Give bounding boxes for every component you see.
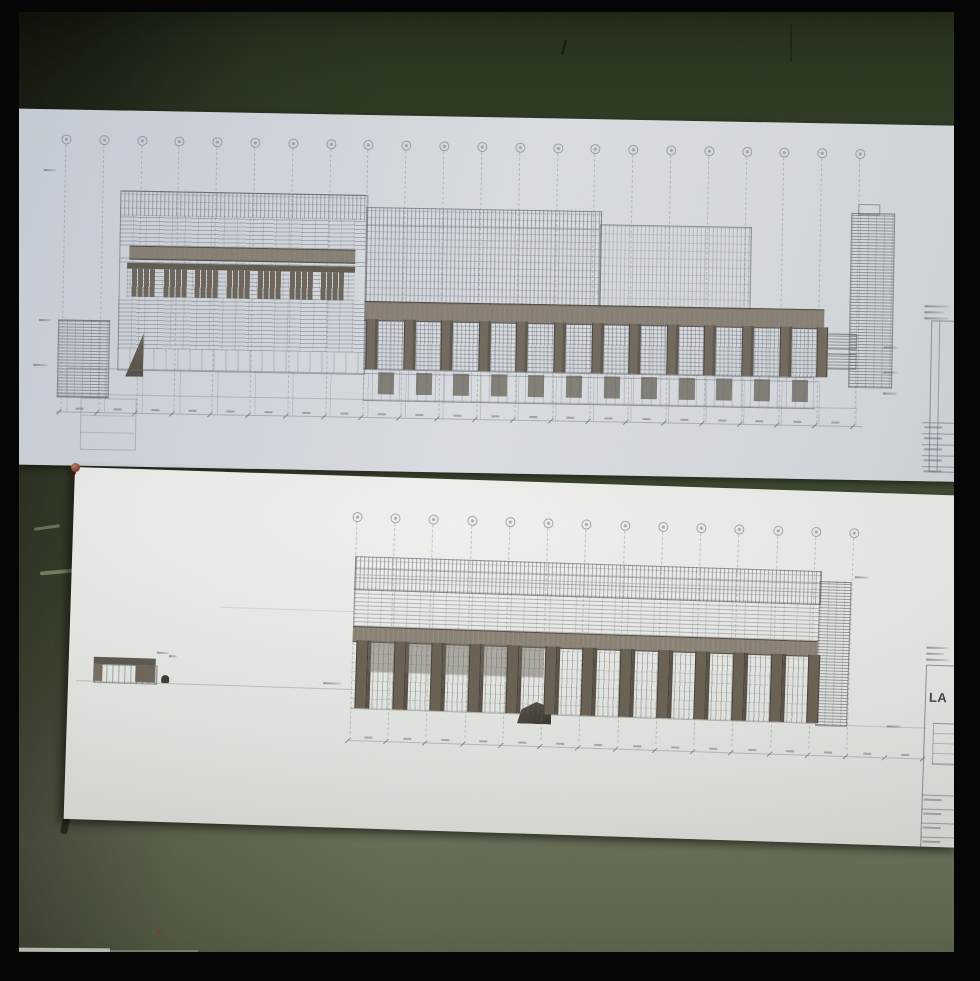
upper-elevation-drawing	[0, 108, 966, 482]
dimension-tick	[774, 422, 780, 428]
opening-deep-shade	[443, 643, 470, 674]
wall-scratch-vertical	[790, 24, 792, 62]
ground-door	[641, 377, 657, 399]
dimension-tick	[321, 414, 327, 420]
grid-axis-line	[363, 150, 369, 415]
opening-deep-shade	[368, 641, 395, 672]
film-border-bottom	[0, 952, 980, 981]
pushpin-head	[71, 463, 80, 472]
grid-bubble	[817, 148, 827, 158]
lower-elevation-drawing: LA	[64, 467, 970, 848]
dimension-tick	[843, 754, 849, 760]
dimension-number-mark	[365, 736, 373, 738]
grid-axis-line	[476, 152, 482, 417]
grid-bubble	[439, 141, 449, 151]
dimension-tick	[920, 756, 926, 762]
grid-axis-line	[401, 151, 407, 416]
upper-drawing-sheet	[0, 108, 966, 482]
opening-glazing	[415, 320, 442, 370]
dimension-number-mark	[718, 419, 726, 421]
dimension-number-mark	[518, 741, 526, 743]
dimension-number-mark	[863, 753, 871, 755]
grid-axis-line	[665, 156, 671, 421]
wall-twig-mark	[561, 40, 567, 55]
lower-drawing-sheet: LA	[64, 467, 970, 848]
film-border-right	[954, 0, 980, 981]
dimension-number-mark	[441, 739, 449, 741]
dimension-tick	[498, 743, 504, 749]
dimension-tick	[690, 749, 696, 755]
dimension-tick	[132, 410, 138, 416]
ground-door	[491, 374, 507, 396]
dimension-tick	[613, 746, 619, 752]
dimension-number-mark	[416, 414, 424, 416]
dimension-tick	[850, 424, 856, 430]
dimension-tick	[737, 422, 743, 428]
grid-axis-line	[779, 158, 785, 423]
window-opening	[288, 272, 313, 300]
dimension-tick	[169, 411, 175, 417]
grid-axis-line	[854, 159, 860, 424]
dimension-number-mark	[786, 750, 794, 752]
dimension-number-mark	[227, 410, 235, 412]
window-opening	[131, 269, 156, 297]
illegible-annotation	[33, 364, 47, 366]
dimension-number-mark	[567, 417, 575, 419]
dimension-tick	[94, 410, 100, 416]
opening-glazing	[640, 324, 667, 374]
dimension-number-mark	[340, 413, 348, 415]
illegible-annotation	[925, 305, 949, 307]
grid-bubble	[477, 142, 487, 152]
opening-glazing	[603, 323, 630, 373]
dimension-number-mark	[264, 411, 272, 413]
dimension-tick	[434, 416, 440, 422]
dimension-tick	[383, 739, 389, 745]
dimension-number-mark	[453, 415, 461, 417]
dimension-number-mark	[302, 412, 310, 414]
lower-generated-layer	[64, 467, 970, 848]
illegible-annotation	[169, 655, 177, 657]
window-opening	[225, 270, 250, 298]
ground-door	[791, 380, 807, 402]
illegible-annotation	[44, 169, 56, 171]
dimension-tick	[805, 753, 811, 759]
dimension-number-mark	[479, 740, 487, 742]
grid-axis-line	[741, 157, 747, 422]
grid-bubble	[704, 146, 714, 156]
upper-generated-layer	[0, 108, 966, 482]
dimension-tick	[245, 413, 251, 419]
illegible-annotation	[926, 653, 944, 656]
window-opening	[162, 269, 187, 297]
dimension-number-mark	[378, 413, 386, 415]
dimension-number-mark	[901, 754, 909, 756]
dimension-tick	[585, 419, 591, 425]
grid-bubble	[250, 138, 260, 148]
ground-door	[453, 374, 469, 396]
opening-glazing	[565, 323, 592, 373]
opening-deep-shade	[481, 644, 508, 675]
dimension-tick	[536, 744, 542, 750]
grid-bubble	[666, 145, 676, 155]
illegible-annotation	[157, 652, 169, 654]
grid-bubble	[288, 139, 298, 149]
grid-axis-line	[514, 153, 520, 418]
dimension-tick	[460, 741, 466, 747]
film-border-left	[0, 0, 19, 981]
dimension-tick	[422, 740, 428, 746]
grid-axis-line	[60, 144, 66, 409]
dimension-number-mark	[556, 743, 564, 745]
grid-bubble	[175, 136, 185, 146]
pushpin	[68, 462, 81, 477]
grid-bubble	[553, 143, 563, 153]
ground-door	[716, 378, 732, 400]
dimension-number-mark	[831, 422, 839, 424]
dimension-number-mark	[491, 415, 499, 417]
grid-axis-line	[846, 538, 854, 750]
dimension-number-mark	[189, 410, 197, 412]
window-opening	[257, 271, 282, 299]
opening-deep-shade	[405, 642, 432, 673]
pier	[816, 327, 828, 377]
illegible-annotation	[924, 317, 948, 319]
grid-bubble	[780, 148, 790, 158]
grid-bubble	[742, 147, 752, 157]
opening-glazing	[528, 322, 555, 372]
dimension-tick	[345, 738, 351, 744]
opening-glazing	[490, 321, 517, 371]
opening-glazing	[716, 325, 743, 375]
ground-door	[754, 379, 770, 401]
film-border-top	[0, 0, 980, 12]
dimension-tick	[548, 418, 554, 424]
dimension-tick	[812, 423, 818, 429]
grid-bubble	[429, 514, 439, 524]
opening-glazing	[791, 327, 818, 377]
dimension-tick	[396, 415, 402, 421]
grid-axis-line	[98, 145, 104, 410]
grid-bubble	[773, 526, 783, 536]
dimension-number-mark	[113, 408, 121, 410]
dimension-number-mark	[605, 417, 613, 419]
grid-bubble	[811, 527, 821, 537]
grid-axis-line	[439, 151, 445, 416]
dimension-tick	[510, 417, 516, 423]
dimension-number-mark	[756, 420, 764, 422]
illegible-annotation	[927, 647, 949, 650]
grid-bubble	[591, 144, 601, 154]
dimension-tick	[472, 417, 478, 423]
grid-axis-line	[552, 153, 558, 418]
dimension-number-mark	[748, 749, 756, 751]
photo-root: LA	[0, 0, 980, 981]
red-speck	[157, 929, 161, 933]
illegible-annotation	[323, 682, 341, 685]
illegible-annotation	[926, 659, 948, 662]
opening-glazing	[753, 326, 780, 376]
grid-axis-line	[817, 158, 823, 423]
window-opening	[194, 270, 219, 298]
grid-bubble	[402, 141, 412, 151]
grid-bubble	[99, 135, 109, 145]
dimension-number-mark	[633, 745, 641, 747]
dimension-tick	[575, 745, 581, 751]
dimension-number-mark	[642, 418, 650, 420]
illegible-annotation	[883, 371, 897, 373]
illegible-annotation	[855, 576, 869, 578]
grid-bubble	[505, 517, 515, 527]
ground-door	[566, 376, 582, 398]
dimension-tick	[699, 421, 705, 427]
grid-bubble	[326, 139, 336, 149]
grid-bubble	[391, 513, 401, 523]
ground-door	[679, 378, 695, 400]
dimension-tick	[728, 750, 734, 756]
dimension-tick	[283, 413, 289, 419]
grid-bubble	[364, 140, 374, 150]
dimension-number-mark	[824, 751, 832, 753]
dimension-number-mark	[794, 421, 802, 423]
dimension-tick	[661, 420, 667, 426]
dimension-number-mark	[403, 738, 411, 740]
dimension-number-mark	[671, 746, 679, 748]
grid-bubble	[582, 519, 592, 529]
ground-door	[378, 372, 394, 394]
ground-door	[415, 373, 431, 395]
opening-glazing	[377, 319, 404, 369]
grid-bubble	[855, 149, 865, 159]
illegible-annotation	[924, 311, 944, 313]
grid-axis-line	[590, 154, 596, 419]
illegible-annotation	[884, 346, 898, 348]
dimension-tick	[651, 748, 657, 754]
illegible-annotation	[883, 392, 897, 394]
illegible-annotation	[887, 725, 901, 727]
grid-bubble	[515, 143, 525, 153]
grid-bubble	[467, 516, 477, 526]
grid-bubble	[213, 137, 223, 147]
grid-bubble	[696, 523, 706, 533]
dimension-number-mark	[594, 744, 602, 746]
dimension-number-mark	[529, 416, 537, 418]
opening-glazing	[452, 321, 479, 371]
dimension-number-mark	[151, 409, 159, 411]
grid-bubble	[620, 521, 630, 531]
grid-bubble	[352, 512, 362, 522]
dimension-number-mark	[680, 419, 688, 421]
grid-bubble	[543, 518, 553, 528]
grid-bubble	[628, 145, 638, 155]
opening-deep-shade	[518, 645, 545, 676]
grid-axis-line	[250, 148, 256, 413]
window-opening	[320, 272, 345, 300]
grid-bubble	[849, 528, 859, 538]
dimension-tick	[623, 419, 629, 425]
dimension-tick	[881, 755, 887, 761]
grid-bubble	[734, 524, 744, 534]
dimension-tick	[56, 409, 62, 415]
grid-bubble	[137, 136, 147, 146]
illegible-annotation	[39, 319, 51, 321]
pier	[807, 655, 821, 723]
dimension-tick	[766, 751, 772, 757]
grid-axis-line	[628, 155, 634, 420]
dimension-number-mark	[75, 408, 83, 410]
ground-door	[528, 375, 544, 397]
opening-glazing	[678, 325, 705, 375]
grid-axis-line	[703, 156, 709, 421]
grid-bubble	[61, 134, 71, 144]
dimension-tick	[207, 412, 213, 418]
dimension-tick	[358, 415, 364, 421]
dimension-number-mark	[709, 748, 717, 750]
grid-bubble	[658, 522, 668, 532]
ground-door	[603, 376, 619, 398]
